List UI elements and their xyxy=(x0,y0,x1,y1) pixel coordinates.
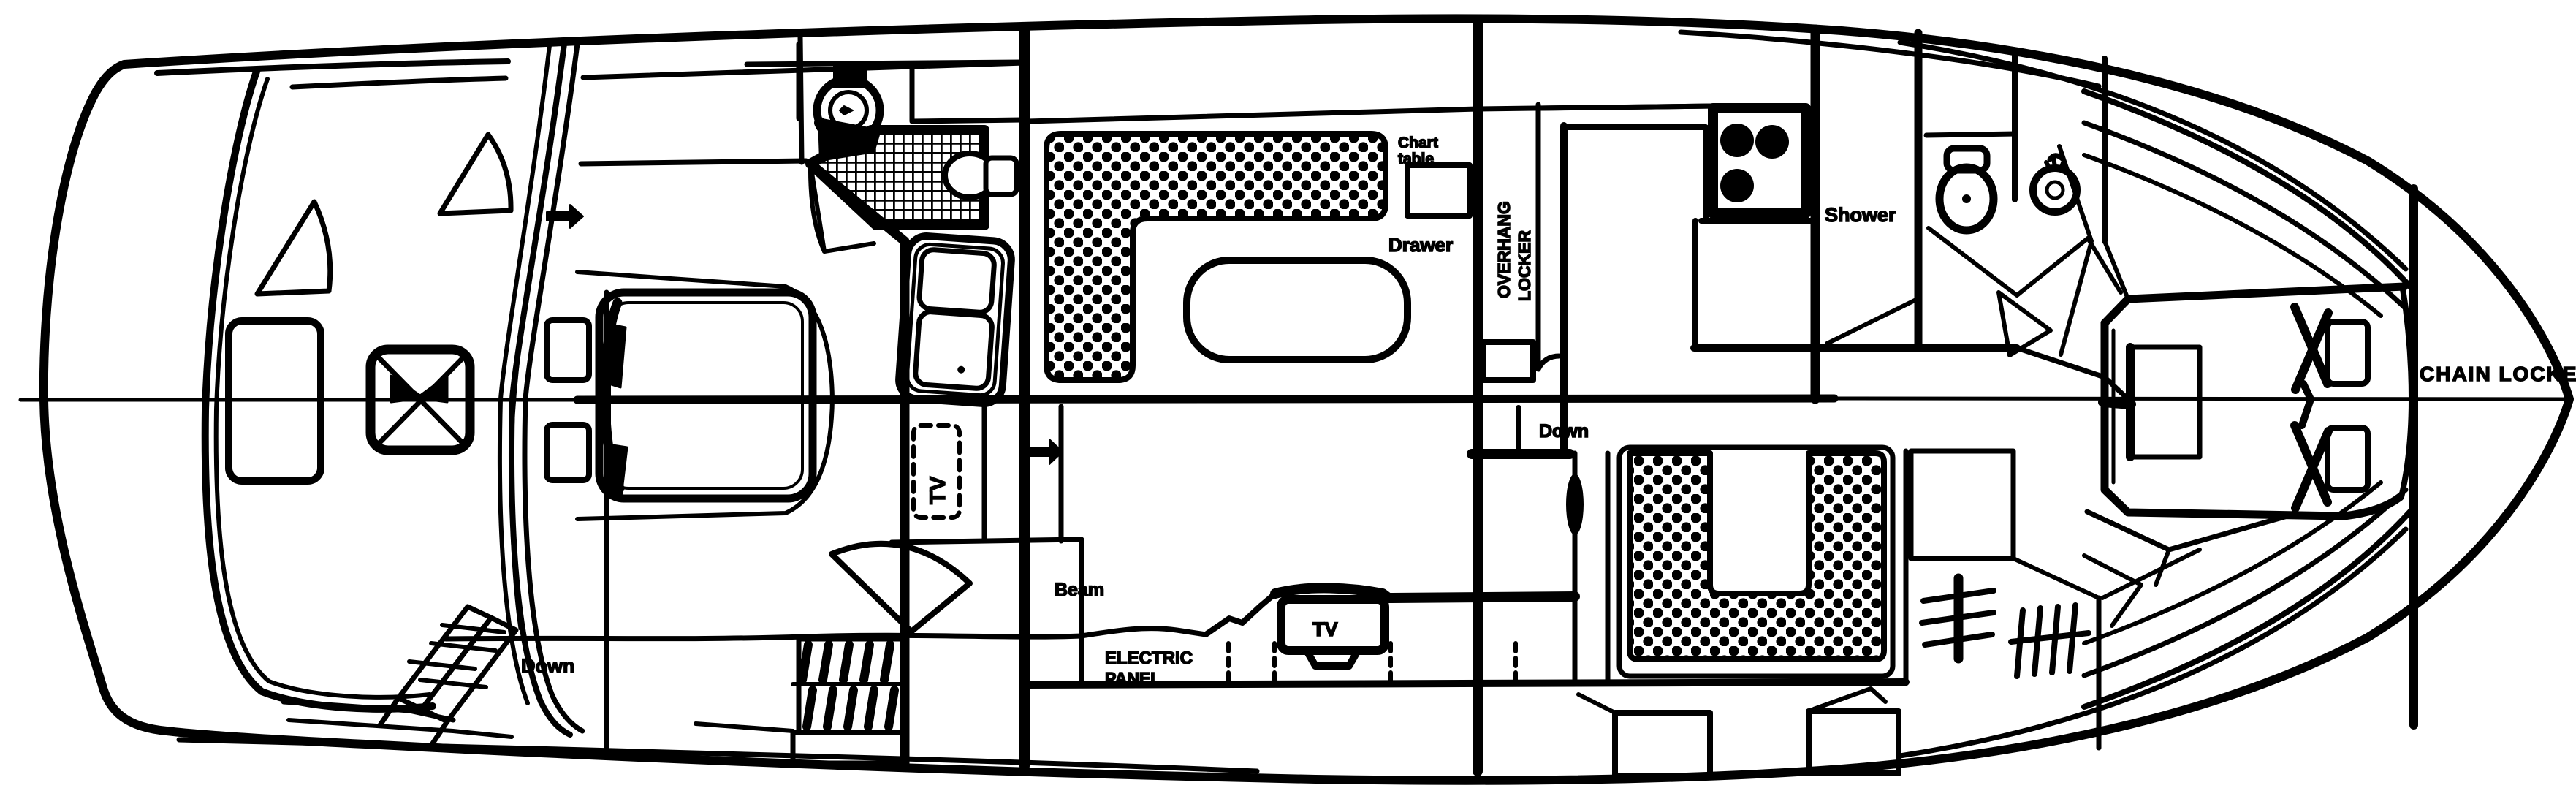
svg-text:Drawer: Drawer xyxy=(1388,234,1453,256)
svg-text:Down: Down xyxy=(521,655,575,677)
svg-text:ELECTRIC: ELECTRIC xyxy=(1105,648,1193,668)
svg-text:OVERHANG: OVERHANG xyxy=(1494,201,1513,298)
svg-text:Chart: Chart xyxy=(1398,134,1438,151)
svg-text:CHAIN LOCKER: CHAIN LOCKER xyxy=(2420,363,2576,385)
svg-text:LOCKER: LOCKER xyxy=(1515,230,1534,302)
svg-text:TV: TV xyxy=(926,477,950,504)
svg-text:table: table xyxy=(1398,151,1434,167)
svg-text:PANEL: PANEL xyxy=(1105,669,1160,688)
svg-text:Down: Down xyxy=(1539,421,1589,442)
svg-text:Shower: Shower xyxy=(1825,204,1896,226)
svg-text:TV: TV xyxy=(1312,618,1338,640)
svg-text:Beam: Beam xyxy=(1055,580,1104,600)
